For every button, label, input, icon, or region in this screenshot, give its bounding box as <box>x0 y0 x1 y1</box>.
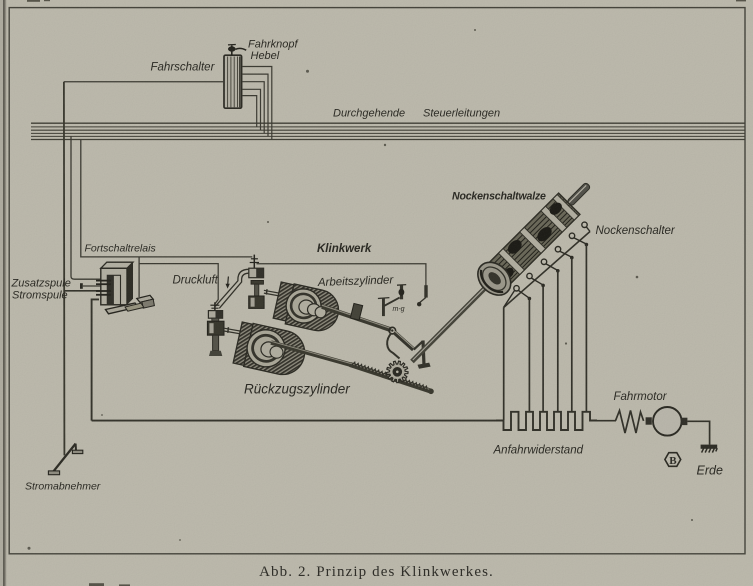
svg-text:Erde: Erde <box>697 464 723 478</box>
svg-text:Fahrmotor: Fahrmotor <box>614 391 668 403</box>
svg-text:Zusatzspule: Zusatzspule <box>11 278 71 290</box>
svg-text:Rückzugszylinder: Rückzugszylinder <box>244 382 350 397</box>
svg-text:Steuerleitungen: Steuerleitungen <box>423 108 500 120</box>
svg-text:Hebel: Hebel <box>251 50 280 62</box>
svg-text:Abb. 2. Prinzip des Klinkwerk: Abb. 2. Prinzip des Klinkwerkes. <box>259 564 494 580</box>
svg-text:Nockenschalter: Nockenschalter <box>596 225 676 237</box>
svg-text:Stromabnehmer: Stromabnehmer <box>25 481 101 493</box>
svg-text:Durchgehende: Durchgehende <box>333 108 405 120</box>
svg-text:Klinkwerk: Klinkwerk <box>317 243 372 255</box>
svg-text:Nockenschaltwalze: Nockenschaltwalze <box>452 191 546 203</box>
svg-text:Stromspule: Stromspule <box>12 290 68 302</box>
svg-text:B: B <box>669 455 677 467</box>
svg-text:Druckluft: Druckluft <box>173 275 219 287</box>
svg-text:m-g: m-g <box>393 306 405 313</box>
svg-text:Fahrschalter: Fahrschalter <box>151 62 216 74</box>
svg-text:Fortschaltrelais: Fortschaltrelais <box>85 243 157 255</box>
svg-text:Anfahrwiderstand: Anfahrwiderstand <box>493 445 584 457</box>
svg-text:Fahrknopf: Fahrknopf <box>248 39 298 51</box>
